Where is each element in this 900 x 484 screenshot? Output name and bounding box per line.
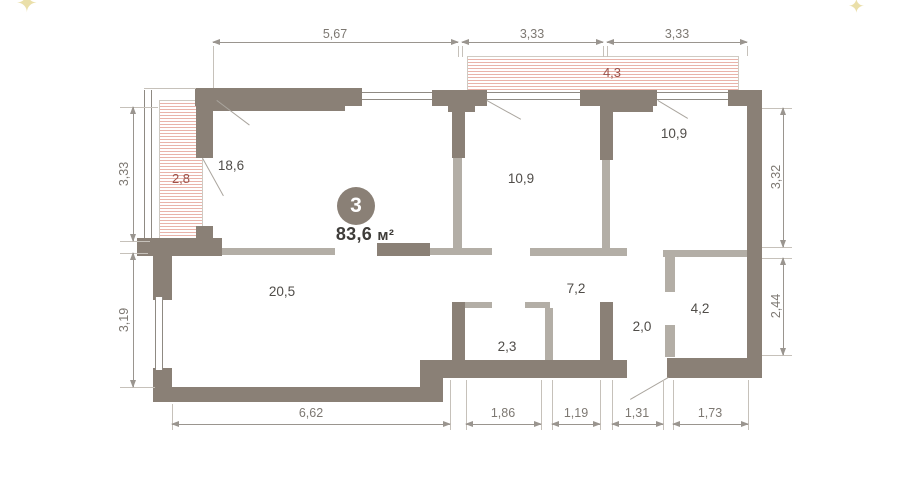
dim-line-right-2 bbox=[783, 258, 784, 355]
partition-bath-3 bbox=[545, 308, 553, 360]
wall-bottom-right bbox=[667, 358, 762, 378]
wall-int-3 bbox=[452, 302, 465, 360]
window bbox=[487, 92, 580, 100]
wall-bottom-left bbox=[155, 387, 443, 402]
room-area-label: 4,2 bbox=[673, 301, 727, 316]
total-area-unit: м² bbox=[377, 227, 394, 244]
dim-label: 3,33 bbox=[117, 142, 131, 206]
wall-int-4 bbox=[600, 302, 613, 377]
window-swing-line bbox=[487, 100, 522, 120]
dim-label: 1,31 bbox=[605, 406, 669, 420]
wall-top-pier-1 bbox=[432, 90, 487, 106]
window bbox=[155, 297, 163, 370]
dim-label: 1,19 bbox=[544, 406, 608, 420]
window bbox=[657, 92, 728, 100]
partition-3 bbox=[222, 248, 335, 255]
witness-line bbox=[747, 46, 748, 56]
dim-label: 1,86 bbox=[471, 406, 535, 420]
witness-line bbox=[762, 247, 792, 248]
room-area-label: 2,0 bbox=[615, 319, 669, 334]
wall-bottom-mid bbox=[420, 360, 627, 378]
dim-label: 5,67 bbox=[303, 27, 367, 41]
room-area-label: 20,5 bbox=[255, 284, 309, 299]
partition-5 bbox=[530, 248, 627, 256]
wall-left-upper bbox=[153, 245, 172, 300]
witness-line bbox=[762, 258, 792, 259]
sparkle-icon: ✦ bbox=[16, 0, 38, 19]
dim-line-bottom-2 bbox=[466, 424, 541, 425]
dim-line-bottom-4 bbox=[612, 424, 663, 425]
loggia-area-label: 4,3 bbox=[585, 65, 639, 80]
room-area-label: 7,2 bbox=[549, 281, 603, 296]
wall-int-1 bbox=[452, 105, 465, 158]
wall-loggia-divider-top bbox=[196, 88, 213, 158]
wall-right bbox=[747, 90, 762, 378]
dim-label: 3,33 bbox=[645, 27, 709, 41]
window-swing-line bbox=[657, 100, 688, 119]
wall-int-2 bbox=[600, 105, 613, 160]
floor-plan: ✦ ✦ bbox=[0, 0, 900, 484]
witness-line bbox=[762, 108, 792, 109]
witness-line bbox=[120, 107, 158, 108]
loggia-frame-line bbox=[144, 88, 196, 89]
dim-line-left-2 bbox=[133, 253, 134, 387]
room-area-label: 2,3 bbox=[480, 339, 534, 354]
room-area-label: 10,9 bbox=[494, 171, 548, 186]
dim-line-bottom-3 bbox=[552, 424, 600, 425]
witness-line bbox=[762, 355, 792, 356]
witness-line bbox=[603, 46, 604, 57]
dim-line-bottom-1 bbox=[172, 424, 450, 425]
witness-line bbox=[458, 46, 459, 57]
partition-bath-1 bbox=[465, 302, 492, 308]
wall-top-pier-2 bbox=[580, 90, 657, 106]
dim-label: 1,73 bbox=[678, 406, 742, 420]
sparkle-icon: ✦ bbox=[848, 0, 865, 19]
loggia-glazing bbox=[144, 90, 152, 238]
partition-2 bbox=[602, 160, 610, 248]
room-area-label: 18,6 bbox=[204, 158, 258, 173]
dim-line-right-1 bbox=[783, 108, 784, 247]
dim-label: 3,33 bbox=[500, 27, 564, 41]
dim-line-top-1 bbox=[213, 42, 458, 43]
partition-4 bbox=[430, 248, 492, 255]
room-area-label: 10,9 bbox=[647, 126, 701, 141]
dim-line-left-1 bbox=[133, 107, 134, 241]
witness-line bbox=[213, 46, 214, 88]
window bbox=[362, 92, 432, 100]
partition-1 bbox=[453, 158, 462, 248]
dim-label: 3,32 bbox=[769, 145, 783, 209]
dim-line-top-3 bbox=[607, 42, 747, 43]
witness-line bbox=[607, 46, 608, 57]
dim-label: 6,62 bbox=[279, 406, 343, 420]
dim-line-bottom-5 bbox=[673, 424, 748, 425]
dim-label: 3,19 bbox=[117, 288, 131, 352]
witness-line bbox=[120, 387, 155, 388]
total-area-label: 83,6 м² bbox=[322, 224, 408, 245]
witness-line bbox=[462, 46, 463, 57]
total-area-value: 83,6 bbox=[336, 224, 372, 244]
loggia-area-label: 2,8 bbox=[154, 171, 208, 186]
dim-label: 2,44 bbox=[769, 274, 783, 338]
partition-6 bbox=[663, 250, 747, 257]
apartment-number-badge: 3 bbox=[337, 187, 375, 225]
dim-line-top-2 bbox=[462, 42, 603, 43]
partition-wardrobe-1 bbox=[665, 257, 675, 292]
